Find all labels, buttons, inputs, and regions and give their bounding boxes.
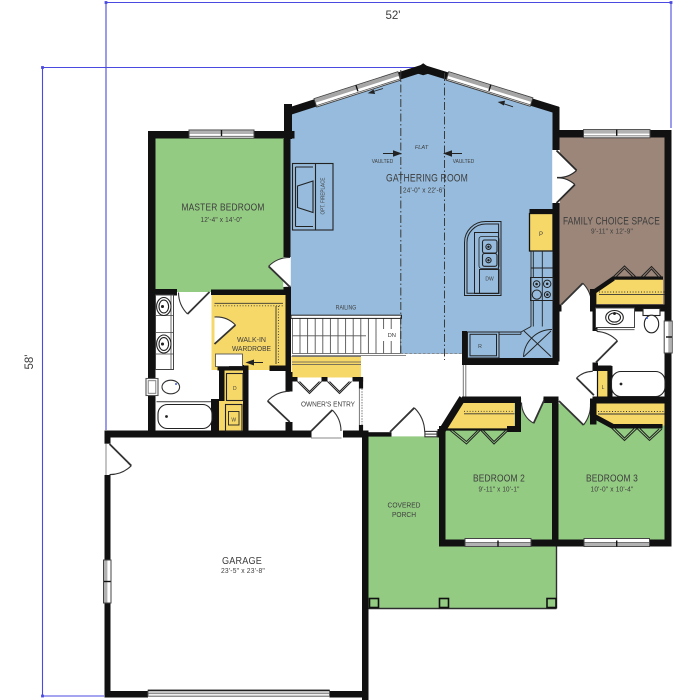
svg-text:PORCH: PORCH [392,510,416,519]
svg-text:12'-4" x 14'-0": 12'-4" x 14'-0" [201,215,243,224]
svg-text:58': 58' [24,355,36,370]
svg-text:23'-5" x 23'-8": 23'-5" x 23'-8" [221,566,265,575]
svg-text:VAULTED: VAULTED [453,159,475,165]
svg-text:BEDROOM 3: BEDROOM 3 [586,473,638,484]
svg-text:OPT. FIREPLACE: OPT. FIREPLACE [321,177,327,214]
svg-text:RAILING: RAILING [336,304,357,311]
svg-text:L: L [602,385,605,391]
svg-text:FAMILY CHOICE SPACE: FAMILY CHOICE SPACE [563,215,660,227]
svg-text:R: R [478,344,482,350]
svg-text:WALK-IN: WALK-IN [237,335,266,344]
svg-text:DW: DW [485,277,494,283]
svg-text:DN: DN [388,333,396,339]
svg-text:WARDROBE: WARDROBE [232,344,271,353]
svg-text:OWNER'S ENTRY: OWNER'S ENTRY [301,400,355,409]
svg-text:FLAT: FLAT [415,145,429,151]
svg-text:GATHERING ROOM: GATHERING ROOM [386,173,468,185]
svg-text:10'-0" x 10'-4": 10'-0" x 10'-4" [591,484,634,493]
svg-text:52': 52' [386,10,401,22]
svg-text:VAULTED: VAULTED [372,159,394,165]
svg-text:D: D [233,386,237,392]
svg-text:W: W [231,418,236,424]
svg-text:9'-11" x 10'-1": 9'-11" x 10'-1" [479,484,520,493]
svg-text:24'-0" x 22'-6": 24'-0" x 22'-6" [403,186,445,195]
svg-text:GARAGE: GARAGE [222,555,262,567]
svg-text:BEDROOM 2: BEDROOM 2 [473,473,525,484]
svg-text:P: P [539,232,543,238]
svg-text:COVERED: COVERED [388,501,421,510]
svg-text:MASTER BEDROOM: MASTER BEDROOM [182,202,265,214]
svg-text:9'-11" x 12'-9": 9'-11" x 12'-9" [591,227,633,236]
